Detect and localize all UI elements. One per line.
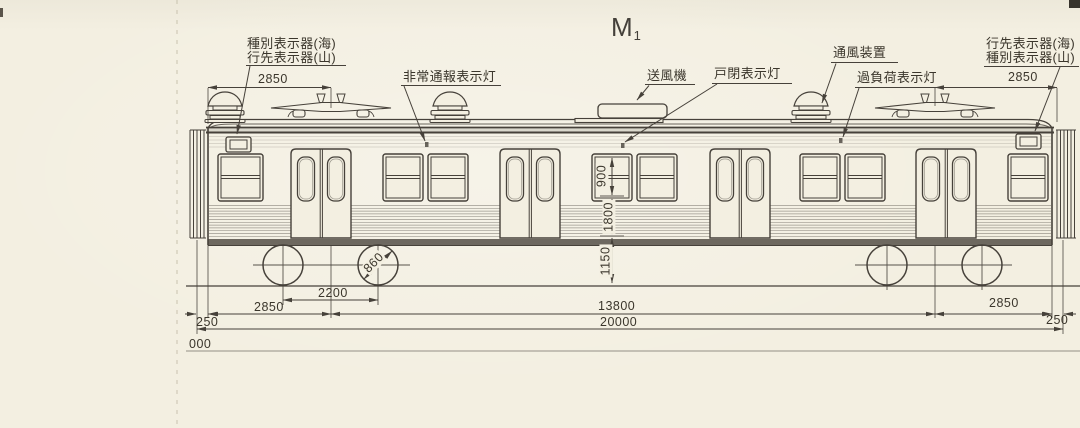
window <box>383 154 423 201</box>
gangway-bellows-right <box>1056 130 1076 238</box>
dim-left-overhang: 2850 <box>254 301 284 314</box>
car-class-label: M <box>611 12 634 42</box>
mushroom-ventilator <box>430 92 470 123</box>
callout-ventilator: 通風装置 <box>833 46 886 60</box>
corner-mark <box>1069 0 1080 8</box>
callout-blower: 送風機 <box>647 69 687 83</box>
dim-window-height: 900 <box>595 163 608 189</box>
dim-right-overhang: 2850 <box>989 297 1019 310</box>
car-class-subscript: 1 <box>634 28 641 43</box>
window <box>845 154 885 201</box>
dim-top-right-span: 2850 <box>1008 71 1038 84</box>
window <box>800 154 840 201</box>
callout-emergency-alarm: 非常通報表示灯 <box>403 70 496 84</box>
end-window <box>218 154 263 201</box>
scanned-page: M1 種別表示器(海) 行先表示器(山) 非常通報表示灯 送風機 戸閉表示灯 通… <box>0 0 1080 428</box>
train-side-elevation-drawing <box>0 0 1080 428</box>
dim-top-left-span: 2850 <box>258 73 288 86</box>
window <box>637 154 677 201</box>
gangway-bellows-left <box>190 130 206 238</box>
callout-left-destination-line1: 種別表示器(海) <box>247 37 336 51</box>
route-indicator-box <box>1016 134 1041 149</box>
door <box>710 149 770 238</box>
callout-door-closed: 戸閉表示灯 <box>714 67 781 81</box>
dim-datum: 000 <box>189 338 211 351</box>
overload-lamp <box>839 138 843 143</box>
dim-right-end: 250 <box>1046 314 1068 327</box>
dim-overall-length: 20000 <box>600 316 637 329</box>
roof-equipment <box>205 92 995 123</box>
callout-right-destination-line2: 種別表示器(山) <box>986 51 1075 65</box>
dim-floor-height: 1150 <box>599 245 612 278</box>
dim-axle-spacing: 2200 <box>318 287 348 300</box>
door <box>291 149 351 238</box>
mushroom-ventilator <box>205 92 245 123</box>
callout-overload: 過負荷表示灯 <box>857 71 937 85</box>
door <box>916 149 976 238</box>
running-gear <box>253 245 1012 305</box>
route-indicator-box <box>226 137 251 152</box>
door-closed-lamp <box>621 143 625 148</box>
edge-mark <box>0 8 3 17</box>
drawing-title: M1 <box>611 14 641 43</box>
door <box>500 149 560 238</box>
window <box>1008 154 1048 201</box>
callout-right-destination-line1: 行先表示器(海) <box>986 37 1075 51</box>
dim-body-height: 1800 <box>602 200 615 234</box>
callout-left-destination-line2: 行先表示器(山) <box>247 51 336 65</box>
blower-box <box>575 104 667 123</box>
mushroom-ventilator <box>791 92 831 123</box>
emergency-lamp <box>425 142 429 147</box>
side-sill <box>208 239 1052 246</box>
dim-bogie-centers: 13800 <box>598 300 635 313</box>
window <box>428 154 468 201</box>
dim-left-end: 250 <box>196 316 218 329</box>
